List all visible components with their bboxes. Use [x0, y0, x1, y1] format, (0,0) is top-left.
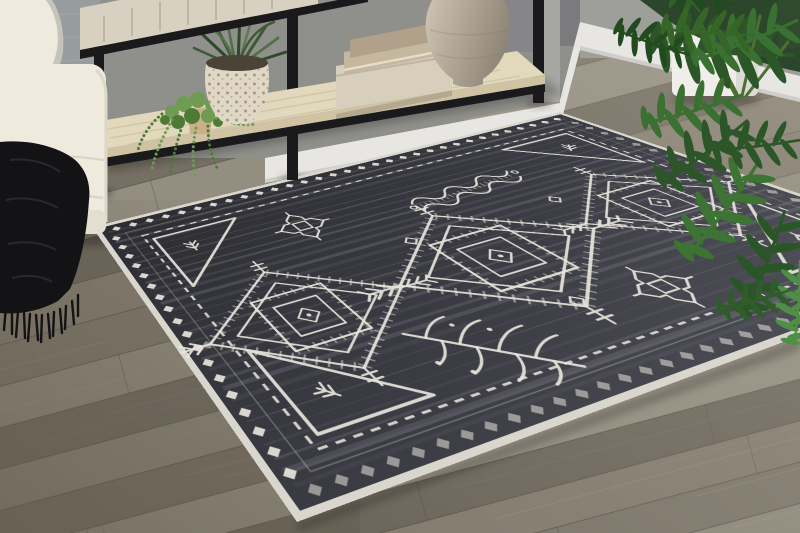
pot-soil — [206, 55, 268, 71]
philodendron-plant — [606, 0, 800, 348]
throw-blanket — [0, 141, 89, 342]
foreground-layer — [0, 0, 800, 533]
console-tabletop — [80, 0, 368, 59]
living-room-scene — [0, 0, 800, 533]
plant-fronds — [606, 0, 800, 348]
